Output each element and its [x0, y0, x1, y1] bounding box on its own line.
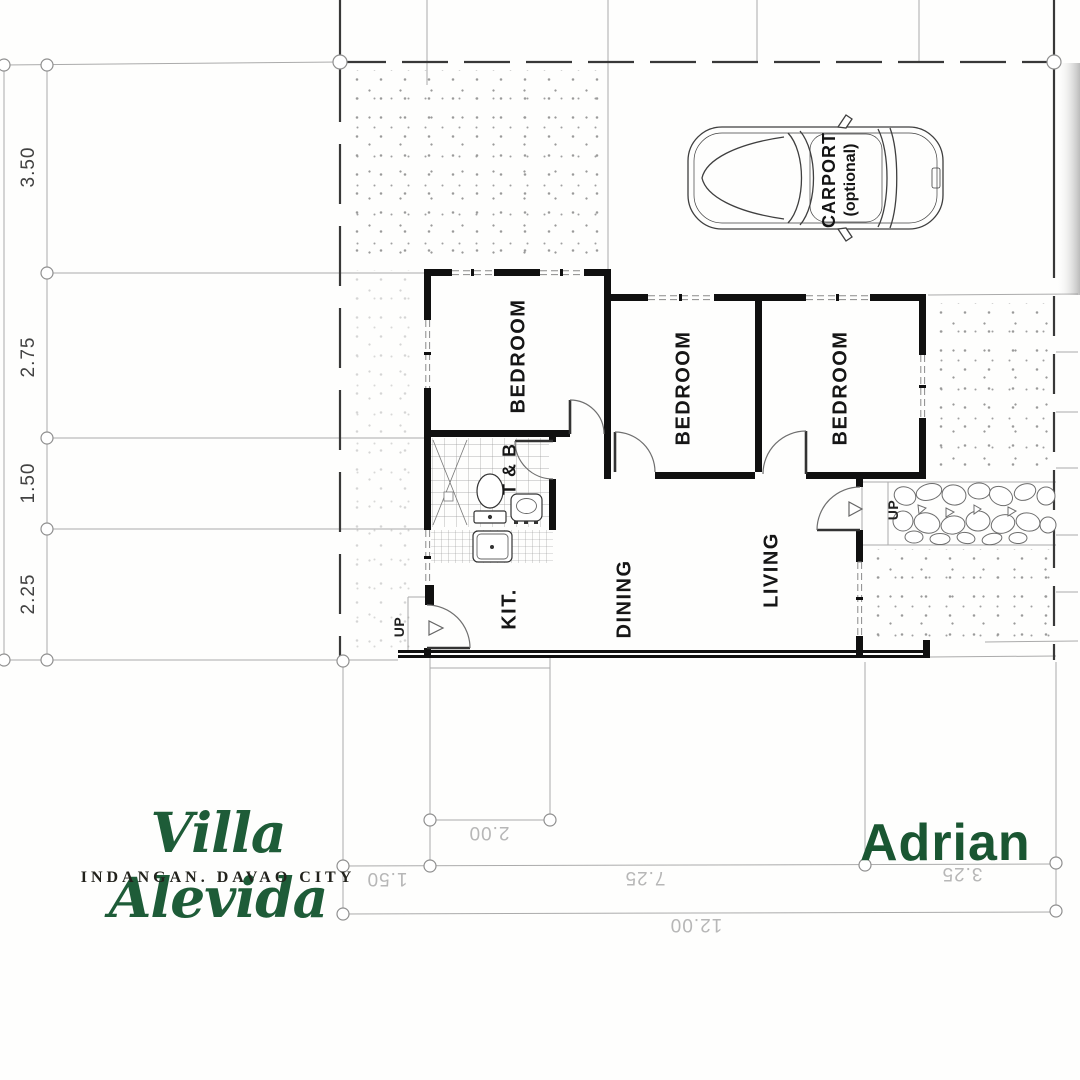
dim-left-1-50: 1.50 [18, 463, 40, 504]
living-label: LIVING [761, 532, 784, 608]
carport-label: CARPORT (optional) [819, 132, 861, 228]
car-top-view-icon [688, 115, 943, 241]
house-model-name: Adrian [860, 813, 1031, 873]
bedroom2-label: BEDROOM [673, 331, 696, 446]
bedroom3-label: BEDROOM [830, 331, 853, 446]
developer-location: INDANGAN. DAVAO CITY [38, 869, 398, 887]
garden-stipple-left [345, 270, 421, 650]
carport-label-line1: CARPORT [819, 132, 840, 228]
garden-stipple-front [345, 70, 603, 268]
dim-left-3-50: 3.50 [18, 147, 40, 188]
up-label-left: UP [391, 617, 407, 637]
toilet-bath-label: T & B [500, 443, 521, 495]
dim-left-2-25: 2.25 [18, 574, 40, 615]
dining-label: DINING [614, 560, 637, 639]
garden-stipple-right [929, 303, 1051, 475]
carport-label-line2: (optional) [840, 132, 861, 228]
lavatory-icon [511, 494, 542, 524]
road-shading [1056, 63, 1080, 295]
dim-bottom-2-00: 2.00 [469, 821, 510, 843]
dim-left-2-75: 2.75 [18, 337, 40, 378]
stone-path [892, 481, 1056, 547]
bedroom1-label: BEDROOM [508, 299, 531, 414]
floor-plan-sheet: BEDROOM BEDROOM BEDROOM T & B KIT. DININ… [0, 0, 1080, 1080]
garden-stipple-bottom-right [866, 549, 1050, 637]
kitchen-label: KIT. [499, 588, 522, 630]
dim-bottom-7-25: 7.25 [625, 866, 666, 888]
developer-logo: Villa Alevida [38, 800, 398, 930]
kitchen-sink-icon [473, 531, 512, 562]
dim-bottom-12-00: 12.00 [670, 913, 723, 935]
up-label-right: UP [885, 500, 901, 520]
